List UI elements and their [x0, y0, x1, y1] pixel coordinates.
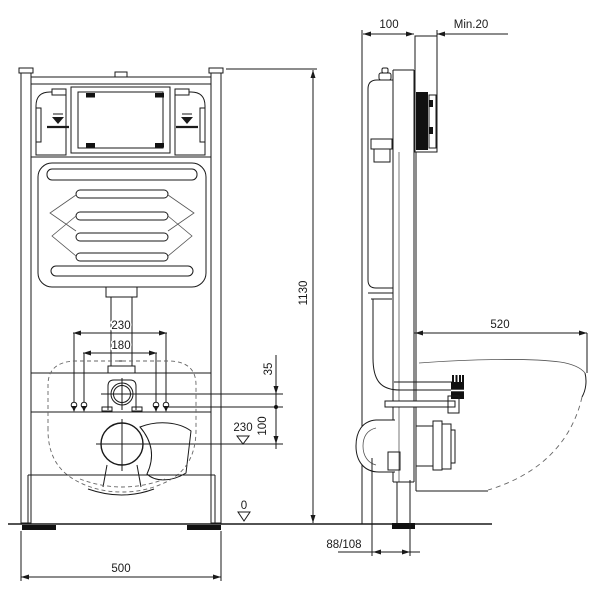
bracket-right — [175, 89, 205, 155]
frame-base — [22, 475, 221, 530]
cistern-side — [368, 68, 393, 358]
frame-channel-side — [393, 70, 416, 491]
dim-label-100-front: 100 — [257, 416, 269, 435]
dim-label-0: 0 — [241, 500, 247, 512]
dim-label-100-depth: 100 — [379, 19, 398, 31]
front-view: 230 180 35 100 230 — [19, 68, 283, 530]
frame-top-tab — [115, 72, 127, 77]
foot-plate-side — [392, 523, 415, 529]
flush-bend-side — [373, 358, 464, 413]
frame-rail-left-cap — [19, 68, 33, 73]
dim-min-wall: Min.20 — [437, 19, 508, 37]
datum-triangle-icon — [238, 512, 250, 521]
dim-inner-fixing-spacing: 180 — [83, 340, 157, 356]
foot-plate-left — [22, 525, 56, 530]
frame-rail-left — [21, 73, 31, 523]
side-view: 100 Min.20 — [326, 19, 587, 556]
frame-foot-side — [392, 482, 415, 529]
dim-label-230-front: 230 — [111, 320, 130, 332]
cistern-front — [38, 163, 206, 287]
access-window — [71, 87, 170, 153]
dim-label-88-108: 88/108 — [326, 539, 361, 551]
bracket-left — [36, 89, 69, 155]
frame-top-bar — [31, 77, 211, 84]
flush-connection — [101, 378, 283, 411]
finished-wall-panel — [415, 36, 437, 152]
dim-label-230-outlet: 230 — [233, 422, 252, 434]
dim-label-180: 180 — [111, 340, 130, 352]
frame-rail-right-cap — [209, 68, 223, 73]
floor-datum: 0 — [238, 500, 250, 521]
installation-drawing: 230 180 35 100 230 — [0, 0, 600, 600]
drain-elbow-side — [356, 420, 455, 472]
dim-frame-depth: 100 — [363, 19, 414, 37]
dim-frame-width: 500 — [21, 531, 221, 581]
drain-outlet-front — [101, 419, 191, 487]
dim-outer-fixing-spacing: 230 — [73, 320, 167, 336]
datum-triangle-icon — [237, 436, 249, 444]
dim-label-min20: Min.20 — [454, 19, 489, 31]
dim-label-500: 500 — [111, 563, 130, 575]
dim-label-1130: 1130 — [298, 281, 310, 306]
dim-outlet-distance: 88/108 — [326, 458, 420, 556]
dim-label-35: 35 — [263, 363, 275, 376]
dim-label-520: 520 — [490, 319, 509, 331]
dim-frame-height: 1130 — [226, 69, 317, 523]
frame-rail-right — [211, 73, 221, 523]
foot-plate-right — [187, 525, 221, 530]
flush-plate-section — [416, 92, 428, 150]
